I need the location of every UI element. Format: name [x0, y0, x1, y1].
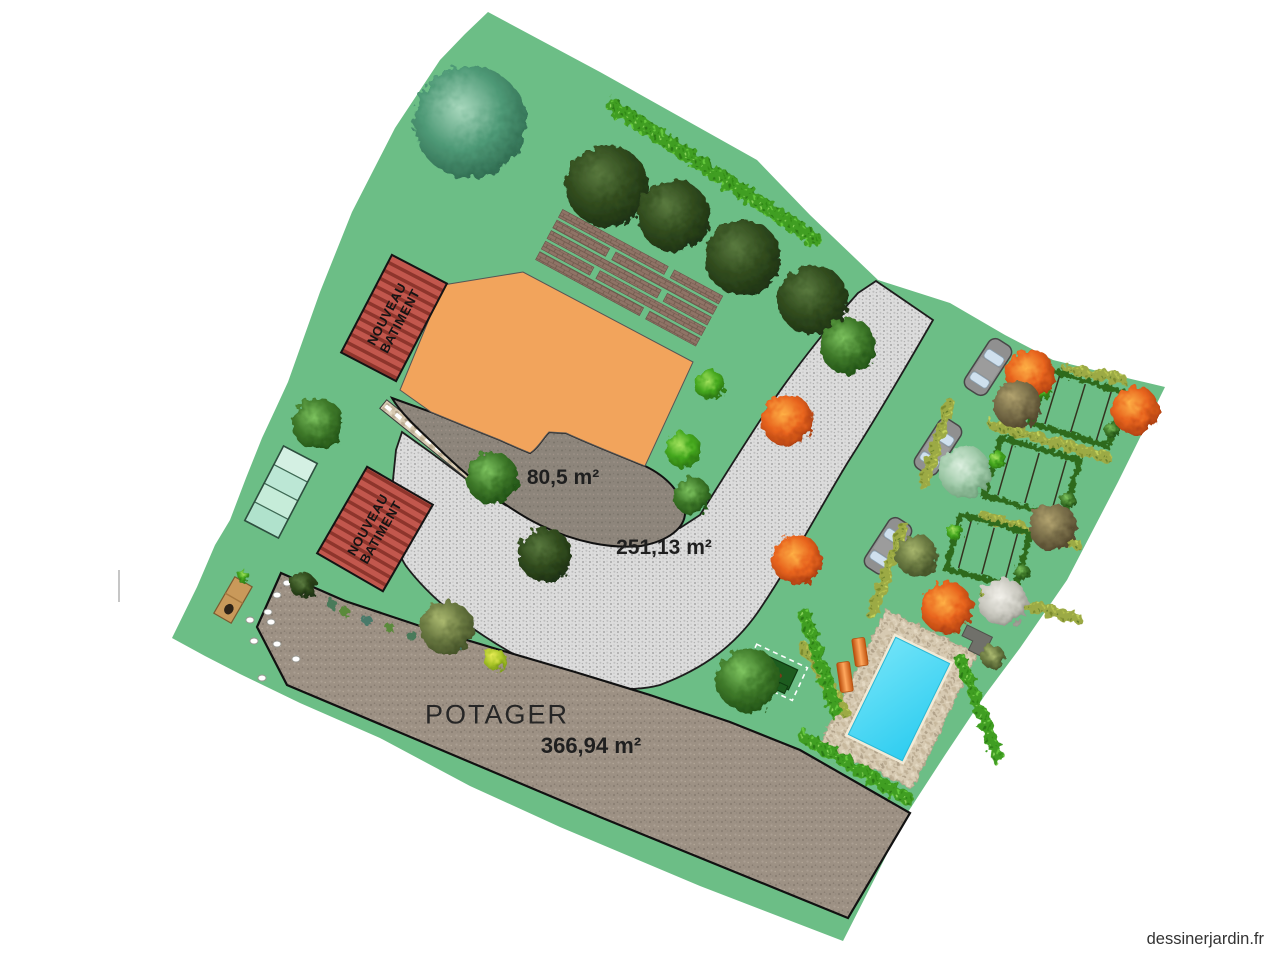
tree-white-blossom [979, 578, 1027, 626]
shrub-olive [981, 645, 1005, 669]
tree-orange [921, 582, 973, 634]
watermark: dessinerjardin.fr [1147, 930, 1264, 949]
tree-green [820, 318, 876, 374]
tree-orange [772, 535, 822, 585]
potager-name-label: POTAGER [425, 700, 569, 731]
tree-dark [705, 220, 781, 296]
path-area-label: 251,13 m² [616, 536, 712, 560]
tree-olive-brown [1029, 503, 1077, 551]
terrace-area-label: 80,5 m² [527, 466, 599, 490]
tree-green [673, 477, 711, 515]
tree-olive [420, 601, 474, 655]
tree-orange [761, 394, 813, 446]
tree-green-large [716, 648, 780, 712]
shrub-bright [665, 432, 701, 468]
tree-orange [1111, 386, 1159, 434]
potager-area-label: 366,94 m² [541, 733, 641, 759]
tree-dark [566, 145, 648, 227]
shrub-bright [695, 370, 725, 400]
garden-plan-canvas: NOUVEAU BATIMENT NOUVEAU BATIMENT 80,5 m… [0, 0, 1280, 960]
shrub-green [292, 398, 344, 450]
tree-olive [896, 535, 938, 577]
tree-green [466, 452, 518, 504]
tree-olive-brown [993, 380, 1041, 428]
shrub-yellow [484, 648, 506, 670]
shrub-dark [290, 572, 316, 598]
tree-aqua [939, 446, 991, 498]
garden-plan-drawing [0, 0, 1280, 960]
tree-dark [638, 180, 710, 252]
tree-teal-large [414, 66, 526, 178]
stray-mark [118, 570, 120, 602]
tree-dark [518, 528, 572, 582]
